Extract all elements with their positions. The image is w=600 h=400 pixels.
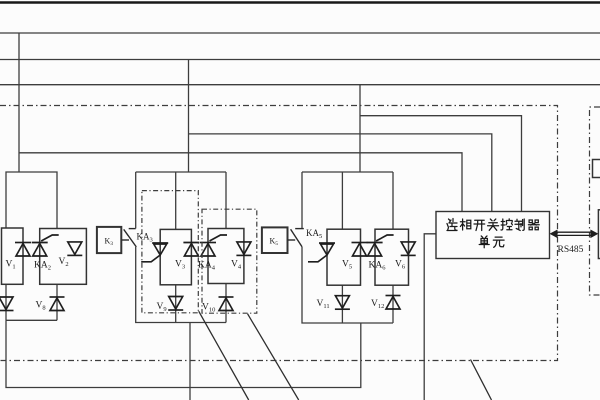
svg-text:RS485: RS485 xyxy=(558,245,584,255)
